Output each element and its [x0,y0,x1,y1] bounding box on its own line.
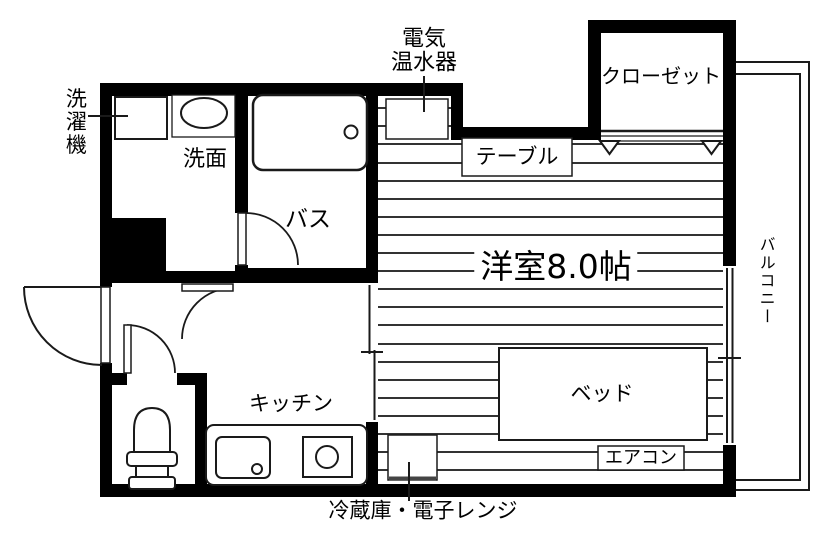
label-table: テーブル [476,146,559,169]
label-kitchen: キッチン [249,393,333,416]
label-water-heater: 電気 温水器 [391,27,457,75]
floor-plan: 洗濯機 洗面 バス 電気 温水器 テーブル クローゼット 洋室8.0帖 バルコニ… [0,0,840,543]
label-bed: ベッド [571,383,634,406]
label-laundry: 洗濯機 [64,88,87,157]
label-aircon: エアコン [605,448,677,467]
label-closet: クローゼット [601,66,721,88]
bathtub-drain [345,126,358,139]
label-water-heater-line1: 電気 [391,27,457,51]
label-balcony: バルコニー [757,236,774,326]
wash-basin [181,98,227,128]
stove-burner [316,446,338,468]
sink-drain [252,464,262,474]
label-water-heater-line2: 温水器 [391,51,457,75]
water-heater-box [386,99,448,139]
label-bath: バス [285,208,331,233]
label-main-room: 洋室8.0帖 [474,249,637,285]
toilet [127,408,177,489]
washing-machine [115,97,167,139]
label-washbasin: 洗面 [183,148,227,172]
label-fridge: 冷蔵庫・電子レンジ [329,500,518,523]
fridge-box [388,435,437,480]
